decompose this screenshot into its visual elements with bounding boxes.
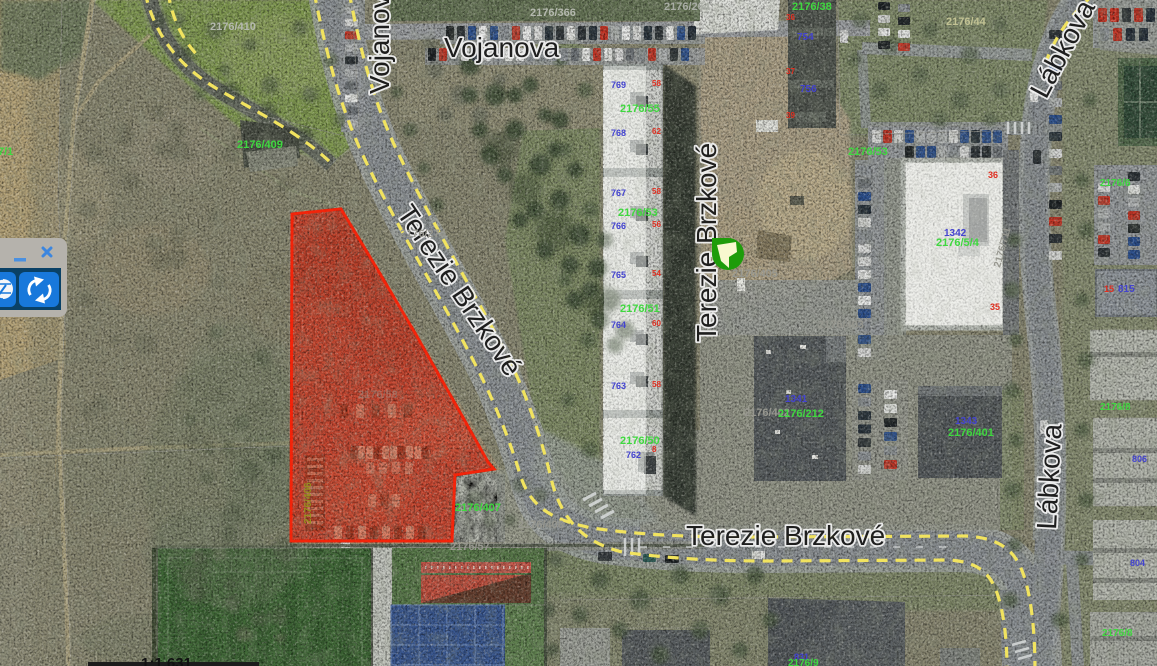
svg-text:2176/9: 2176/9 [788,658,819,666]
svg-text:15: 15 [1104,284,1114,294]
svg-text:2176/408: 2176/408 [518,519,564,531]
svg-text:2176/406: 2176/406 [303,482,314,524]
svg-text:2176/38: 2176/38 [792,1,832,13]
svg-text:2176/405: 2176/405 [732,268,778,280]
svg-text:2176/366: 2176/366 [530,7,576,19]
svg-text:58: 58 [652,187,661,196]
svg-text:764: 764 [611,320,626,330]
svg-text:37: 37 [786,67,795,76]
svg-text:Lábkova: Lábkova [1031,423,1068,531]
svg-text:35: 35 [990,302,1000,312]
svg-text:58: 58 [652,79,661,88]
svg-text:2176/55: 2176/55 [620,103,660,115]
svg-text:2176/53: 2176/53 [848,146,888,158]
svg-text:768: 768 [611,128,626,138]
svg-text:767: 767 [611,188,626,198]
svg-text:2176/51: 2176/51 [620,303,660,315]
svg-text:804: 804 [1130,558,1145,568]
svg-text:Vojanova: Vojanova [364,0,395,94]
svg-text:2176/264: 2176/264 [664,1,711,13]
svg-text:2176/57: 2176/57 [450,541,490,553]
svg-text:2176/403: 2176/403 [818,319,864,331]
svg-text:2176/53: 2176/53 [618,207,658,219]
svg-text:56: 56 [652,220,661,229]
svg-text:2176/409: 2176/409 [237,139,283,151]
svg-text:2176/8: 2176/8 [1102,628,1133,639]
svg-text:2176/58: 2176/58 [358,389,398,401]
svg-text:756: 756 [800,84,817,95]
svg-text:1:1.631: 1:1.631 [141,655,192,666]
svg-text:769: 769 [611,80,626,90]
svg-text:60: 60 [652,319,661,328]
svg-text:1343: 1343 [955,416,978,427]
svg-text:2176/407: 2176/407 [455,502,501,514]
svg-text:763: 763 [611,381,626,391]
svg-text:2176/274: 2176/274 [400,228,447,240]
svg-text:815: 815 [1118,284,1135,295]
svg-text:2176/44: 2176/44 [946,16,987,28]
svg-text:8: 8 [652,445,657,454]
svg-text:58: 58 [652,380,661,389]
svg-text:2176/8: 2176/8 [1100,402,1131,413]
svg-text:36: 36 [988,170,998,180]
svg-text:1341: 1341 [785,394,808,405]
svg-text:765: 765 [611,270,626,280]
svg-text:766: 766 [611,221,626,231]
svg-text:1342: 1342 [944,228,967,239]
svg-text:62: 62 [652,127,661,136]
svg-text:7/1: 7/1 [0,146,13,158]
svg-text:2176/401: 2176/401 [948,427,994,439]
svg-text:762: 762 [626,450,641,460]
svg-text:Terezie Brzkové: Terezie Brzkové [686,520,885,551]
svg-text:36: 36 [786,13,795,22]
svg-text:2176/6: 2176/6 [1100,178,1131,189]
svg-text:Vojanova: Vojanova [444,32,560,63]
svg-text:754: 754 [797,32,814,43]
svg-text:54: 54 [652,269,661,278]
svg-text:39: 39 [786,111,795,120]
svg-text:2176/410: 2176/410 [210,21,256,33]
svg-text:2176/212: 2176/212 [778,408,824,420]
svg-text:806: 806 [1132,454,1147,464]
